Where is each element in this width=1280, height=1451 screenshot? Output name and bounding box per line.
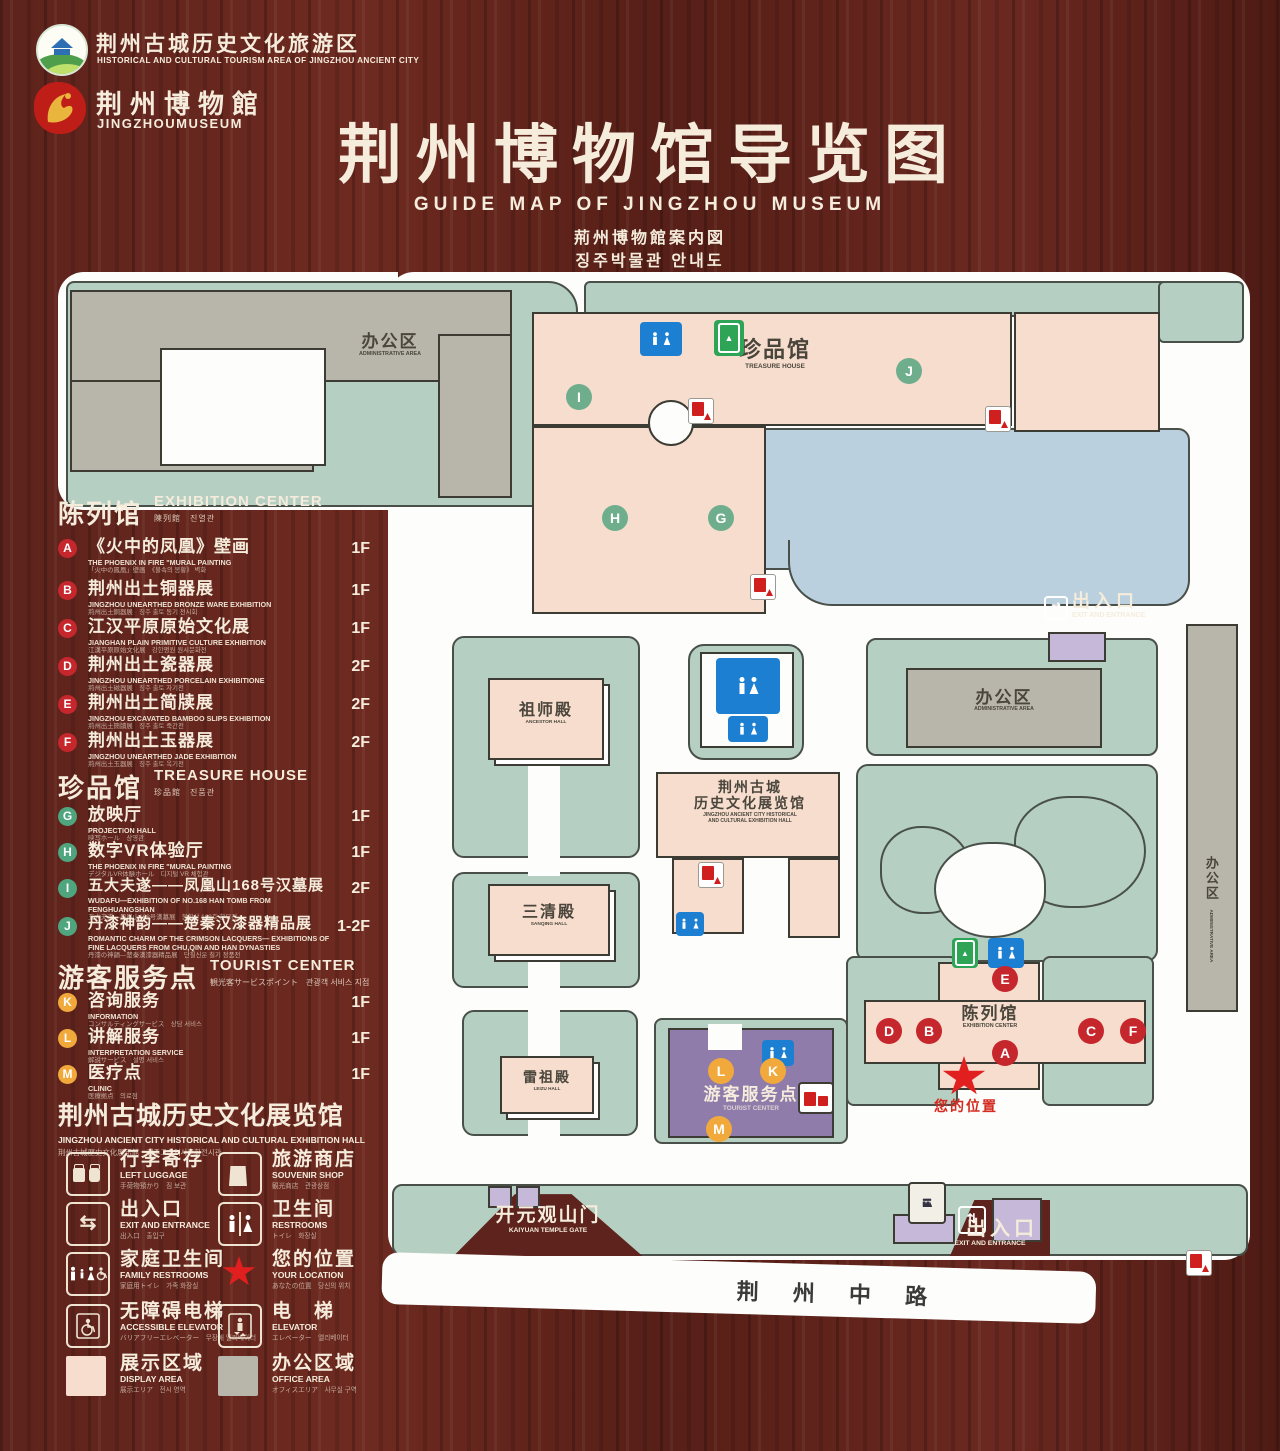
exit-right-label-zh: 出入口 [1072,592,1192,612]
section-title-en: EXHIBITION CENTER [154,494,323,511]
exhibition-hall-label-zh2: 历史文化展览馆 [666,796,834,812]
item-floor: 1F [351,808,370,826]
icon-label-en: LEFT LUGGAGE [120,1170,204,1180]
elevator-icon [218,1304,262,1348]
item-sub: 「火中の鳳凰」壁画 《불속의 봉황》 벽화 [88,567,336,575]
item-sub: 江漢平原原始文化展 강한평원 원시문화전 [88,647,336,655]
exhibition-hall-label: 荆州古城 历史文化展览馆 JINGZHOU ANCIENT CITY HISTO… [666,780,834,825]
marker-H: H [602,505,628,531]
item-en: JINGZHOU EXCAVATED BAMBOO SLIPS EXHIBITI… [88,714,336,723]
legend-sidebar: 陈列馆 EXHIBITION CENTER 陳列館 진열관 A 《火中的凤凰》壁… [58,494,370,1154]
item-zh: 五大夫遂——凤凰山168号汉墓展 [88,878,336,895]
female-figure-icon [244,1215,252,1233]
item-en: ROMANTIC CHARM OF THE CRIMSON LACQUERS— … [88,934,336,952]
icon-label-zh: 电 梯 [272,1302,349,1322]
item-en: JINGZHOU UNEARTHED PORCELAIN EXHIBITIONE [88,676,336,685]
hall-note-en: JINGZHOU ANCIENT CITY HISTORICAL AND CUL… [58,1135,388,1145]
icon-label-en: ELEVATOR [272,1322,349,1332]
kaiyuan-gate-label: 开元观山门 KAIYUAN TEMPLE GATE [448,1206,648,1234]
icon-label-sub: 手荷物預かり 짐 보관 [120,1180,204,1190]
icon-label-zh: 旅游商店 [272,1150,356,1170]
icon-label-en: FAMILY RESTROOMS [120,1270,225,1280]
marker-G: G [708,505,734,531]
icon-label-sub: トイレ 화장실 [272,1230,335,1240]
female-figure-icon [664,332,670,346]
leizu-hall-label-zh: 雷祖殿 [502,1070,592,1086]
shopping-bag-glyph [229,1166,247,1186]
building-admin-right: 办公区 ADMINISTRATIVE AREA [906,668,1102,748]
male-figure-icon [69,1267,75,1281]
marker-L: L [708,1058,734,1084]
item-floor: 1F [351,620,370,638]
admin-top-label: 办公区 ADMINISTRATIVE AREA [300,332,480,357]
icon-label-zh: 您的位置 [272,1250,356,1270]
item-floor: 1F [351,844,370,862]
sanqing-hall-label-zh: 三清殿 [490,904,608,922]
item-en: INFORMATION [88,1012,336,1021]
display-area-swatch [66,1356,106,1396]
item-floor: 1F [351,994,370,1012]
icon-label-zh: 卫生间 [272,1200,335,1220]
icon-label-sub: 家庭用トイレ 가족 화장실 [120,1280,225,1290]
section-title-sub: 観光客サービスポイント 관광객 서비스 지점 [210,977,369,988]
legend-item-G: G 放映厅 PROJECTION HALL 映写ホール 상영관 1F [58,806,370,842]
icon-legend-row: 卫生间 RESTROOMS トイレ 화장실 [272,1200,335,1240]
item-en: JIANGHAN PLAIN PRIMITIVE CULTURE EXHIBIT… [88,638,336,647]
badge-K: K [58,993,77,1012]
badge-M: M [58,1065,77,1084]
badge-J: J [58,917,77,936]
item-floor: 2F [351,880,370,898]
icon-label-en: DISPLAY AREA [120,1374,204,1384]
sanqing-hall-label-en: SANQING HALL [490,922,608,927]
item-sub: 荊州出土磁器展 징주 출토 자기전 [88,685,336,693]
icon-label-zh: 出入口 [120,1200,210,1220]
icon-label-zh: 行李寄存 [120,1150,204,1170]
legend-item-E: E 荆州出土简牍展 JINGZHOU EXCAVATED BAMBOO SLIP… [58,694,370,730]
badge-H: H [58,843,77,862]
left-luggage-icon [798,1082,834,1114]
icon-label-en: YOUR LOCATION [272,1270,356,1280]
item-floor: 1F [351,582,370,600]
item-en: CLINIC [88,1084,336,1093]
legend-item-J: J 丹漆神韵——楚秦汉漆器精品展 ROMANTIC CHARM OF THE C… [58,916,370,959]
exit-right-label-en: EXIT AND ENTRANCE [1072,612,1192,620]
legend-item-M: M 医疗点 CLINIC 医療拠点 의료점 1F [58,1064,370,1100]
item-zh: 讲解服务 [88,1028,336,1047]
badge-D: D [58,657,77,676]
elevator-figure: ▲ [718,323,741,353]
admin-right-label-zh: 办公区 [908,688,1100,707]
page-title-en: GUIDE MAP OF JINGZHOU MUSEUM [280,194,1020,216]
icon-label-zh: 办公区域 [272,1354,357,1374]
elevator-icon: ▲ [952,938,978,968]
admin-top-label-en: ADMINISTRATIVE AREA [300,351,480,357]
section-title-zh: 珍品馆 [58,768,142,805]
path-corridor [528,1112,560,1138]
section-title-en: TOURIST CENTER [210,958,369,975]
leizu-hall-label-en: LEIZU HALL [502,1086,592,1091]
icon-legend-row: 展示区域 DISPLAY AREA 展示エリア 전시 영역 [120,1354,204,1394]
male-figure-icon [652,332,658,346]
item-zh: 荆州出土铜器展 [88,580,336,599]
badge-A: A [58,539,77,558]
female-figure-icon [928,1199,932,1208]
exhibition-hall-label-en2: AND CULTURAL EXHIBITION HALL [666,819,834,825]
icon-label-sub: あなたの位置 당신의 위치 [272,1280,356,1290]
item-zh: 《火中的凤凰》壁画 [88,538,336,557]
male-figure-icon [228,1215,236,1233]
badge-E: E [58,695,77,714]
icon-label-en: SOUVENIR SHOP [272,1170,356,1180]
icon-legend-row: 电 梯 ELEVATOR エレベーター 엘리베이터 [272,1302,349,1342]
female-figure-icon [781,1047,786,1059]
icon-legend-row: 出入口 EXIT AND ENTRANCE 出入口 출입구 [120,1200,210,1240]
legend-item-B: B 荆州出土铜器展 JINGZHOU UNEARTHED BRONZE WARE… [58,580,370,616]
your-location-label: 您的位置 [918,1096,1014,1116]
item-floor: 1F [351,540,370,558]
item-zh: 江汉平原原始文化展 [88,618,336,637]
admin-side-label: 办公区 ADMINISTRATIVE AREA [1202,856,1220,962]
hall-note-zh: 荆州古城历史文化展览馆 [58,1096,388,1132]
icon-label-zh: 家庭卫生间 [120,1250,225,1270]
badge-C: C [58,619,77,638]
item-sub: 荊州出土銅器展 징주 출토 동기 전시회 [88,609,336,617]
admin-right-label: 办公区 ADMINISTRATIVE AREA [908,688,1100,713]
admin-side-label-zh: 办公区 [1204,856,1219,901]
admin-right-label-en: ADMINISTRATIVE AREA [908,707,1100,713]
escalator-icon [698,862,724,888]
child-figure-icon [79,1269,83,1279]
icon-legend-row: 旅游商店 SOUVENIR SHOP 観光商店 관광상점 [272,1150,356,1190]
marker-C: C [1078,1018,1104,1044]
divider [239,1212,241,1236]
icon-legend: 行李寄存 LEFT LUGGAGE 手荷物預かり 짐 보관 旅游商店 SOUVE… [58,1146,398,1446]
female-figure-icon [694,919,699,930]
building-ancestor-hall: 祖师殿 ANCESTOR HALL [488,678,604,760]
kaiyuan-gate-label-en: KAIYUAN TEMPLE GATE [448,1227,648,1234]
item-floor: 1F [351,1030,370,1048]
item-en: THE PHOENIX IN FIRE "MURAL PAINTING [88,862,336,871]
exhibition-hall-label-zh1: 荆州古城 [666,780,834,796]
icon-label-zh: 展示区域 [120,1354,204,1374]
garden-pond [934,842,1046,938]
icon-label-sub: 観光商店 관광상점 [272,1180,356,1190]
path-corridor [528,1010,560,1058]
leizu-hall-label: 雷祖殿 LEIZU HALL [502,1070,592,1091]
item-en: JINGZHOU UNEARTHED JADE EXHIBITION [88,752,336,761]
building-treasure-house-right [1014,312,1160,432]
kaiyuan-gate-label-zh: 开元观山门 [448,1206,648,1227]
exhibition-center-label-zh: 陈列馆 [928,1004,1052,1023]
item-floor: 2F [351,658,370,676]
exit-right-label: 出入口 EXIT AND ENTRANCE [1072,592,1192,619]
badge-F: F [58,733,77,752]
building-exhibition-hall-arm-right [788,858,840,938]
icon-label-sub: オフィスエリア 사무실 구역 [272,1384,357,1394]
male-figure-icon [738,677,746,695]
exit-bottom-label: 出入口 EXIT AND ENTRANCE [930,1218,1050,1247]
sage-block-topright [1158,281,1244,343]
item-floor: 2F [351,696,370,714]
bag-glyph [818,1096,828,1106]
section-title-zh: 陈列馆 [58,494,142,531]
badge-I: I [58,879,77,898]
souvenir-shop-icon [218,1152,262,1196]
elevator-icon: ▲ [714,320,744,356]
item-zh: 荆州出土玉器展 [88,732,336,751]
treasure-house-label-en: TREASURE HOUSE [700,363,850,370]
item-en: JINGZHOU UNEARTHED BRONZE WARE EXHIBITIO… [88,600,336,609]
female-figure-icon [87,1267,93,1281]
ancestor-hall-label-en: ANCESTOR HALL [490,720,602,725]
escalator-icon [750,574,776,600]
legend-item-F: F 荆州出土玉器展 JINGZHOU UNEARTHED JADE EXHIBI… [58,732,370,768]
path-corridor [528,752,560,876]
legend-section-treasure: 珍品馆 TREASURE HOUSE 珍品館 진품관 [58,768,308,805]
icon-label-sub: 展示エリア 전시 영역 [120,1384,204,1394]
escalator-icon [1186,1250,1212,1276]
item-en: INTERPRETATION SERVICE [88,1048,336,1057]
icon-legend-row: 行李寄存 LEFT LUGGAGE 手荷物預かり 짐 보관 [120,1150,204,1190]
restrooms-icon [988,938,1024,968]
icon-label-en: EXIT AND ENTRANCE [120,1220,210,1230]
item-floor: 1-2F [337,918,370,936]
wheelchair-elevator-glyph [76,1313,100,1339]
building-admin-top-arm [438,334,512,498]
escalator-icon [688,398,714,424]
building-leizu-hall: 雷祖殿 LEIZU HALL [500,1056,594,1114]
restrooms-icon [716,658,780,714]
ancestor-hall-label-zh: 祖师殿 [490,702,602,720]
icon-label-en: RESTROOMS [272,1220,335,1230]
female-figure-icon [751,723,757,736]
family-restrooms-icon [728,716,768,742]
admin-top-label-zh: 办公区 [300,332,480,351]
exit-bottom-label-zh: 出入口 [954,1218,1050,1240]
legend-item-L: L 讲解服务 INTERPRETATION SERVICE 解説サービス 설명 … [58,1028,370,1064]
male-figure-icon [997,947,1003,960]
marker-B: B [916,1018,942,1044]
building-sanqing-hall: 三清殿 SANQING HALL [488,884,610,956]
exhibition-center-label: 陈列馆 EXHIBITION CENTER [928,1004,1052,1029]
item-zh: 数字VR体验厅 [88,842,336,861]
male-figure-icon [739,723,745,736]
escalator-icon [985,406,1011,432]
legend-item-A: A 《火中的凤凰》壁画 THE PHOENIX IN FIRE "MURAL P… [58,538,370,574]
icon-label-sub: エレベーター 엘리베이터 [272,1332,349,1342]
phoenix-icon [34,82,86,134]
marker-F: F [1120,1018,1146,1044]
item-floor: 1F [351,1066,370,1084]
icon-legend-row: 您的位置 YOUR LOCATION あなたの位置 당신의 위치 [272,1250,356,1290]
family-restrooms-icon [66,1252,110,1296]
marker-J: J [896,358,922,384]
marker-A: A [992,1040,1018,1066]
gate-structure [1048,632,1106,662]
badge-G: G [58,807,77,826]
suitcase-glyph [804,1092,816,1106]
item-en: PROJECTION HALL [88,826,336,835]
logo-pagoda-base [54,49,70,55]
item-zh: 咨询服务 [88,992,336,1011]
exhibition-center-label-en: EXHIBITION CENTER [928,1023,1052,1029]
road-label: 荆 州 中 路 [736,1274,941,1312]
section-title-sub: 珍品館 진품관 [154,787,308,798]
legend-section-tourist: 游客服务点 TOURIST CENTER 観光客サービスポイント 관광객 서비스… [58,958,369,995]
item-zh: 放映厅 [88,806,336,825]
marker-M: M [706,1116,732,1142]
item-floor: 2F [351,734,370,752]
page-title: 荆州博物馆导览图 [280,104,1020,196]
suitcase-glyph [73,1168,85,1182]
female-figure-icon [1009,947,1015,960]
legend-item-D: D 荆州出土瓷器展 JINGZHOU UNEARTHED PORCELAIN E… [58,656,370,692]
admin-courtyard [160,348,326,466]
exit-bottom-label-en: EXIT AND ENTRANCE [930,1240,1050,1247]
item-zh: 荆州出土瓷器展 [88,656,336,675]
exit-entrance-icon: ⇆ [66,1202,110,1246]
item-zh: 丹漆神韵——楚秦汉漆器精品展 [88,916,336,933]
icon-label-en: OFFICE AREA [272,1374,357,1384]
marker-K: K [760,1058,786,1084]
section-title-zh: 游客服务点 [58,958,198,995]
legend-item-K: K 咨询服务 INFORMATION コンサルティングサービス 상담 서비스 1… [58,992,370,1028]
building-admin-side: 办公区 ADMINISTRATIVE AREA [1186,624,1238,1012]
tourism-logo-icon [36,24,88,76]
icon-label-sub: 出入口 출입구 [120,1230,210,1240]
museum-logo-icon [34,82,86,134]
page-title-ja: 荊州博物館案内図 [280,224,1020,248]
bag-glyph [89,1168,100,1182]
icon-legend-row: 办公区域 OFFICE AREA オフィスエリア 사무실 구역 [272,1354,357,1394]
museum-logo-subtitle: JINGZHOUMUSEUM [97,116,243,131]
item-en: WUDAFU—EXHIBITION OF NO.168 HAN TOMB FRO… [88,896,336,914]
female-figure-icon [750,677,758,695]
marker-I: I [566,384,592,410]
item-zh: 荆州出土简牍展 [88,694,336,713]
section-title-en: TREASURE HOUSE [154,768,308,785]
left-luggage-icon [66,1152,110,1196]
legend-item-H: H 数字VR体验厅 THE PHOENIX IN FIRE "MURAL PAI… [58,842,370,878]
accessible-elevator-icon [66,1304,110,1348]
marker-D: D [876,1018,902,1044]
item-zh: 医疗点 [88,1064,336,1083]
sanqing-hall-label: 三清殿 SANQING HALL [490,904,608,927]
male-figure-icon [682,919,687,930]
item-sub: 荊州出土簡牘展 징주 출토 죽간전 [88,723,336,731]
restrooms-icon [218,1202,262,1246]
marker-E: E [992,966,1018,992]
tourism-logo-subtitle: HISTORICAL AND CULTURAL TOURISM AREA OF … [97,56,419,65]
exit-entrance-icon: ⇄ [1044,596,1068,620]
restrooms-icon [676,912,704,936]
logo-pagoda-icon [51,38,73,48]
legend-section-exhibition: 陈列馆 EXHIBITION CENTER 陳列館 진열관 [58,494,323,531]
section-title-sub: 陳列館 진열관 [154,513,323,524]
badge-L: L [58,1029,77,1048]
elevator-glyph [228,1313,252,1339]
icon-legend-row: 家庭卫生间 FAMILY RESTROOMS 家庭用トイレ 가족 화장실 [120,1250,225,1290]
tourism-logo-title: 荆州古城历史文化旅游区 [96,28,360,58]
item-en: THE PHOENIX IN FIRE "MURAL PAINTING [88,558,336,567]
your-location-icon [222,1256,256,1288]
road-jingzhou-middle: 荆 州 中 路 [381,1252,1096,1324]
elevator-figure: ▲ [955,940,975,966]
badge-B: B [58,581,77,600]
restrooms-icon [640,322,682,356]
admin-side-label-en: ADMINISTRATIVE AREA [1209,909,1214,962]
office-area-swatch [218,1356,258,1396]
guide-map-poster: { "brand": { "tourism_logo": {"zh": "荆州古… [0,0,1280,1451]
page-title-ko: 징주박물관 안내도 [280,247,1020,271]
wheelchair-icon [96,1267,108,1281]
legend-item-C: C 江汉平原原始文化展 JIANGHAN PLAIN PRIMITIVE CUL… [58,618,370,654]
ancestor-hall-label: 祖师殿 ANCESTOR HALL [490,702,602,725]
path-notch [708,1024,742,1050]
